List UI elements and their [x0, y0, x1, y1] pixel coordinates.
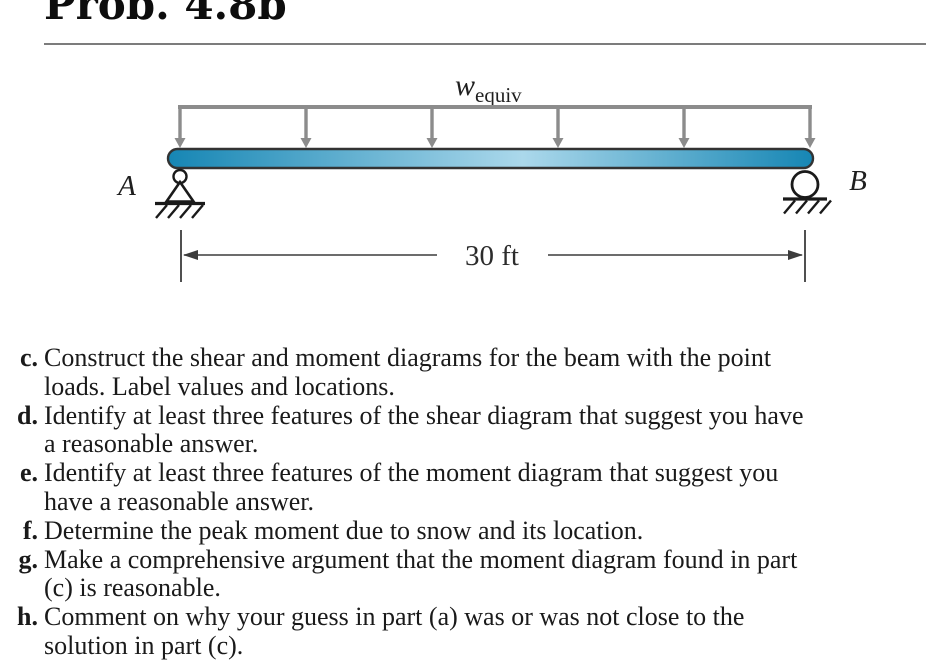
item-text: Identify at least three features of the …: [44, 402, 930, 460]
roller-support-b: [783, 172, 831, 214]
load-arrow: [805, 107, 816, 148]
item-label: c.: [0, 344, 38, 373]
load-arrow: [301, 107, 312, 148]
item-text: Comment on why your guess in part (a) wa…: [44, 603, 930, 661]
page-title: Prob. 4.8b: [44, 0, 287, 26]
pin-support-a: [155, 170, 205, 218]
item-label: d.: [0, 402, 38, 431]
item-text: Determine the peak moment due to snow an…: [44, 517, 930, 546]
beam: [168, 149, 813, 168]
item-label: f.: [0, 517, 38, 546]
load-label: wequiv: [455, 69, 522, 107]
list-item-e: e. Identify at least three features of t…: [0, 459, 930, 517]
ground-hatching: [784, 201, 831, 214]
load-arrow: [427, 107, 438, 148]
item-text: Make a comprehensive argument that the m…: [44, 546, 930, 604]
load-arrow: [175, 107, 186, 148]
load-arrow: [679, 107, 690, 148]
textbook-page: { "page": { "title": "Prob. 4.8b" }, "di…: [0, 0, 930, 655]
dimension-line: 30 ft: [181, 230, 805, 282]
load-arrow: [553, 107, 564, 148]
ground-hatching: [156, 205, 203, 218]
support-label-a: A: [116, 170, 136, 202]
item-label: h.: [0, 603, 38, 632]
dimension-arrow-right: [788, 250, 803, 260]
list-item-g: g. Make a comprehensive argument that th…: [0, 546, 930, 604]
distributed-load-arrows: [175, 107, 816, 148]
item-label: e.: [0, 459, 38, 488]
dimension-arrow-left: [183, 250, 198, 260]
dimension-label: 30 ft: [465, 240, 519, 272]
item-text: Identify at least three features of the …: [44, 459, 930, 517]
problem-list: c. Construct the shear and moment diagra…: [0, 344, 930, 661]
title-divider: [44, 43, 926, 45]
list-item-f: f. Determine the peak moment due to snow…: [0, 517, 930, 546]
list-item-c: c. Construct the shear and moment diagra…: [0, 344, 930, 402]
item-text: Construct the shear and moment diagrams …: [44, 344, 930, 402]
support-label-b: B: [849, 165, 867, 197]
beam-diagram: wequiv A B: [0, 55, 930, 290]
list-item-d: d. Identify at least three features of t…: [0, 402, 930, 460]
list-item-h: h. Comment on why your guess in part (a)…: [0, 603, 930, 661]
item-label: g.: [0, 546, 38, 575]
